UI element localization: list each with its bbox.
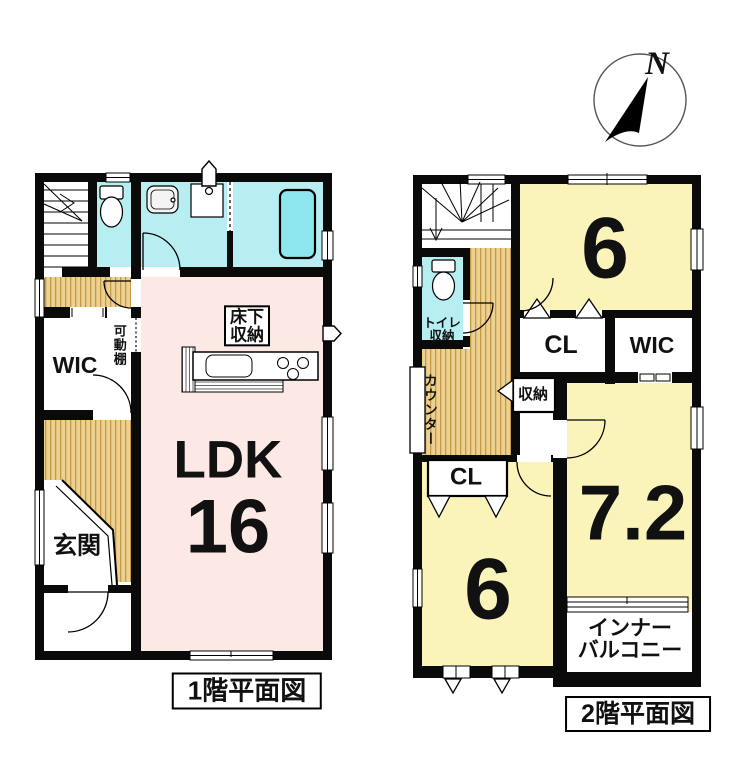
label-inner-balcony: インナー バルコニー [578,618,683,662]
label-bedroom-north-area: 6 [581,204,629,293]
stairwell-1f [44,182,88,277]
bathtub-icon [280,190,315,258]
toilet-fixture-1f [100,186,123,227]
floorplan-page: N LDK 16 床下 収納 WIC 玄関 可動棚 1階平面図 6 6 7.2 … [0,0,740,769]
toilet-fixture-2f [432,260,455,300]
label-wic-2f: WIC [630,334,675,358]
compass-north-label: N [645,47,669,81]
entrance-porch [44,593,131,651]
label-closet-south: CL [450,466,482,491]
label-wic-1f: WIC [53,354,98,378]
hallway-2f-a [470,248,511,455]
underfloor-storage-line1: 床下 [230,308,264,326]
label-storage: 収納 [518,387,548,403]
washer-pan-icon [191,184,223,217]
inner-balcony-line1: インナー [578,618,683,640]
underfloor-storage-line2: 収納 [230,326,264,344]
label-bedroom-east-area: 7.2 [579,472,687,553]
vent-fan-icon [323,326,341,341]
label-entrance: 玄関 [53,535,101,560]
label-ldk-name: LDK [174,432,283,487]
label-closet-north: CL [544,332,577,358]
label-toilet-2f: トイレ 収納 [423,317,461,343]
label-bedroom-south-area: 6 [464,545,512,634]
toilet-label-line2: 収納 [423,330,461,343]
floor2-caption: 2階平面図 [565,696,711,732]
water-heater-icon [202,161,216,186]
label-movable-shelf: 可動棚 [112,324,126,366]
compass-needle-icon [605,77,648,142]
kitchen-sink-icon [206,355,252,377]
floor1-plan [35,161,341,660]
inner-balcony-line2: バルコニー [578,640,683,662]
label-counter: カウンター [422,374,436,447]
floor1-caption: 1階平面図 [172,672,322,709]
floor2-plan [410,173,703,693]
label-ldk-area: 16 [186,487,271,566]
label-underfloor-storage: 床下 収納 [224,305,270,346]
compass [594,54,686,146]
washbasin-icon [147,186,178,213]
